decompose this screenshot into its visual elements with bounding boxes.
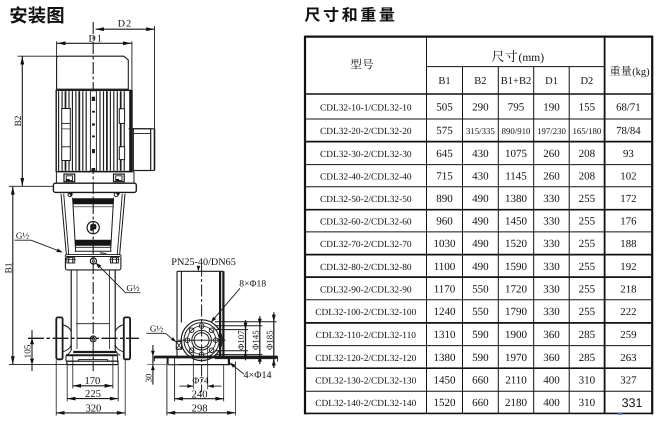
svg-text:CDL32-40-2/CDL32-40: CDL32-40-2/CDL32-40 — [320, 173, 412, 183]
svg-text:430: 430 — [472, 148, 489, 160]
svg-text:550: 550 — [472, 306, 489, 318]
svg-text:PN25-40/DN65: PN25-40/DN65 — [171, 257, 236, 268]
svg-text:93: 93 — [623, 148, 634, 160]
svg-text:490: 490 — [472, 261, 489, 273]
svg-text:1240: 1240 — [434, 306, 457, 318]
svg-text:290: 290 — [472, 101, 489, 113]
svg-text:225: 225 — [85, 389, 101, 400]
svg-text:CDL32-100-2/CDL32-100: CDL32-100-2/CDL32-100 — [315, 308, 416, 318]
svg-text:30: 30 — [143, 373, 153, 382]
svg-text:CDL32-70-2/CDL32-70: CDL32-70-2/CDL32-70 — [320, 240, 412, 250]
svg-text:590: 590 — [472, 329, 489, 341]
svg-text:285: 285 — [579, 329, 596, 341]
svg-text:890/910: 890/910 — [502, 126, 531, 136]
svg-text:1380: 1380 — [505, 193, 528, 205]
svg-text:263: 263 — [620, 352, 636, 364]
svg-text:330: 330 — [543, 193, 560, 205]
svg-text:505: 505 — [436, 101, 453, 113]
svg-text:490: 490 — [472, 216, 489, 228]
svg-text:590: 590 — [472, 352, 489, 364]
svg-text:4×Φ14: 4×Φ14 — [244, 370, 272, 381]
svg-text:D1: D1 — [545, 76, 558, 87]
svg-text:255: 255 — [579, 306, 596, 318]
svg-text:CDL32-120-2/CDL32-120: CDL32-120-2/CDL32-120 — [315, 354, 416, 364]
svg-text:1075: 1075 — [505, 148, 528, 160]
svg-text:68/71: 68/71 — [616, 101, 641, 113]
svg-text:176: 176 — [620, 216, 637, 228]
svg-text:1100: 1100 — [434, 261, 456, 273]
svg-text:715: 715 — [436, 171, 453, 183]
svg-text:172: 172 — [620, 193, 636, 205]
svg-text:1170: 1170 — [434, 283, 456, 295]
svg-text:1450: 1450 — [434, 375, 457, 387]
svg-text:360: 360 — [543, 329, 560, 341]
svg-text:960: 960 — [436, 216, 453, 228]
svg-text:CDL32-130-2/CDL32-130: CDL32-130-2/CDL32-130 — [315, 377, 416, 387]
svg-text:1720: 1720 — [505, 283, 528, 295]
svg-text:CDL32-140-2/CDL32-140: CDL32-140-2/CDL32-140 — [315, 399, 416, 409]
svg-text:208: 208 — [579, 148, 596, 160]
svg-text:D2: D2 — [580, 76, 593, 87]
svg-text:310: 310 — [579, 375, 596, 387]
svg-text:G½: G½ — [150, 324, 163, 334]
svg-text:890: 890 — [436, 193, 453, 205]
svg-text:285: 285 — [579, 352, 596, 364]
svg-text:B2: B2 — [14, 115, 24, 126]
svg-text:315/335: 315/335 — [466, 126, 495, 136]
svg-text:Φ145: Φ145 — [250, 330, 260, 350]
svg-text:102: 102 — [620, 171, 636, 183]
svg-text:208: 208 — [579, 171, 596, 183]
svg-text:330: 330 — [543, 216, 560, 228]
svg-text:1380: 1380 — [434, 352, 457, 364]
svg-text:(mm): (mm) — [519, 52, 545, 64]
svg-text:192: 192 — [620, 261, 636, 273]
svg-text:255: 255 — [579, 238, 596, 250]
svg-text:1900: 1900 — [505, 329, 528, 341]
svg-text:2110: 2110 — [505, 375, 527, 387]
svg-text:795: 795 — [508, 101, 525, 113]
svg-text:218: 218 — [620, 283, 636, 295]
svg-text:240: 240 — [192, 389, 208, 400]
svg-text:331: 331 — [622, 396, 643, 410]
svg-text:CDL32-20-2/CDL32-20: CDL32-20-2/CDL32-20 — [320, 127, 412, 137]
svg-text:188: 188 — [620, 238, 636, 250]
svg-text:260: 260 — [543, 148, 560, 160]
svg-text:330: 330 — [543, 238, 560, 250]
svg-text:1450: 1450 — [505, 216, 528, 228]
svg-text:330: 330 — [543, 261, 560, 273]
svg-text:G½: G½ — [126, 283, 139, 293]
svg-text:430: 430 — [472, 171, 489, 183]
svg-text:255: 255 — [579, 193, 596, 205]
svg-text:645: 645 — [436, 148, 453, 160]
svg-text:197/230: 197/230 — [537, 126, 566, 136]
svg-text:330: 330 — [543, 283, 560, 295]
svg-text:105: 105 — [22, 344, 32, 358]
svg-text:CDL32-60-2/CDL32-60: CDL32-60-2/CDL32-60 — [320, 218, 412, 228]
svg-text:(kg): (kg) — [632, 67, 650, 78]
svg-text:310: 310 — [579, 397, 596, 409]
svg-text:Φ74: Φ74 — [192, 377, 209, 387]
svg-text:190: 190 — [543, 101, 560, 113]
svg-text:1310: 1310 — [434, 329, 457, 341]
svg-text:170: 170 — [84, 376, 100, 387]
svg-text:330: 330 — [543, 306, 560, 318]
svg-text:CDL32-90-2/CDL32-90: CDL32-90-2/CDL32-90 — [320, 285, 412, 295]
svg-text:298: 298 — [192, 403, 208, 414]
svg-text:1590: 1590 — [505, 261, 528, 273]
svg-text:B1: B1 — [5, 262, 15, 273]
svg-text:B2: B2 — [474, 76, 486, 87]
svg-text:D2: D2 — [118, 19, 133, 30]
svg-text:2180: 2180 — [505, 397, 528, 409]
svg-text:B1: B1 — [438, 76, 450, 87]
svg-text:D1: D1 — [88, 34, 103, 45]
svg-text:Φ107: Φ107 — [236, 330, 246, 350]
svg-text:400: 400 — [543, 375, 560, 387]
svg-text:1520: 1520 — [505, 238, 528, 250]
svg-text:575: 575 — [436, 125, 453, 137]
svg-text:255: 255 — [579, 283, 596, 295]
svg-text:490: 490 — [472, 193, 489, 205]
svg-text:259: 259 — [620, 329, 636, 341]
svg-text:CDL32-50-2/CDL32-50: CDL32-50-2/CDL32-50 — [320, 195, 412, 205]
svg-text:222: 222 — [620, 306, 636, 318]
svg-text:165/180: 165/180 — [572, 126, 601, 136]
svg-text:CDL32-10-1/CDL32-10: CDL32-10-1/CDL32-10 — [320, 103, 412, 113]
svg-text:CDL32-30-2/CDL32-30: CDL32-30-2/CDL32-30 — [320, 150, 412, 160]
svg-text:660: 660 — [472, 397, 489, 409]
svg-text:255: 255 — [579, 261, 596, 273]
svg-text:155: 155 — [579, 101, 596, 113]
svg-text:1520: 1520 — [434, 397, 457, 409]
svg-text:78/84: 78/84 — [616, 125, 641, 137]
svg-text:255: 255 — [579, 216, 596, 228]
svg-text:1030: 1030 — [434, 238, 457, 250]
svg-text:Φ185: Φ185 — [264, 330, 274, 350]
svg-text:B1+B2: B1+B2 — [501, 76, 531, 87]
svg-text:1790: 1790 — [505, 306, 528, 318]
svg-text:1145: 1145 — [505, 171, 527, 183]
svg-text:CDL32-80-2/CDL32-80: CDL32-80-2/CDL32-80 — [320, 263, 412, 273]
svg-text:CDL32-110-2/CDL32-110: CDL32-110-2/CDL32-110 — [316, 331, 417, 341]
svg-text:660: 660 — [472, 375, 489, 387]
svg-text:G½: G½ — [16, 231, 29, 241]
svg-text:400: 400 — [543, 397, 560, 409]
svg-text:8×Φ18: 8×Φ18 — [239, 279, 266, 290]
svg-text:320: 320 — [85, 403, 101, 414]
svg-text:490: 490 — [472, 238, 489, 250]
svg-text:360: 360 — [543, 352, 560, 364]
svg-text:550: 550 — [472, 283, 489, 295]
svg-text:327: 327 — [620, 375, 637, 387]
svg-text:260: 260 — [543, 171, 560, 183]
svg-text:1970: 1970 — [505, 352, 528, 364]
